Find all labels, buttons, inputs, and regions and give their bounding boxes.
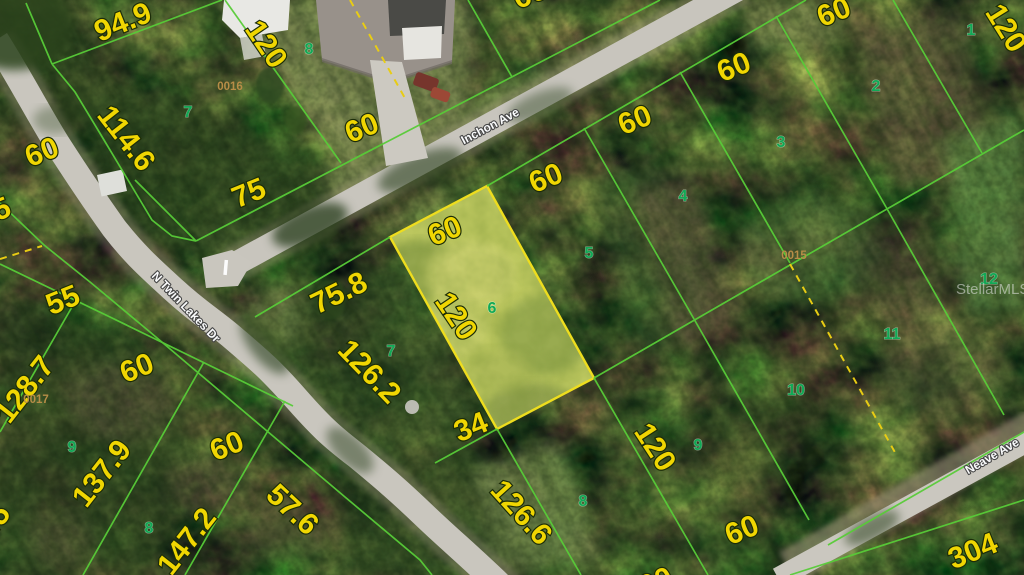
- svg-text:0015: 0015: [781, 250, 807, 262]
- svg-text:5: 5: [585, 245, 594, 262]
- svg-text:0017: 0017: [23, 394, 49, 406]
- svg-text:0016: 0016: [217, 81, 243, 93]
- svg-text:2: 2: [872, 78, 881, 95]
- svg-text:6: 6: [488, 300, 497, 317]
- svg-text:8: 8: [145, 520, 154, 537]
- svg-text:StellarMLS: StellarMLS: [956, 281, 1024, 298]
- svg-text:4: 4: [679, 188, 688, 205]
- svg-text:9: 9: [694, 437, 703, 454]
- svg-text:9: 9: [68, 439, 77, 456]
- svg-text:7: 7: [184, 104, 193, 121]
- svg-text:7: 7: [387, 343, 396, 360]
- svg-text:11: 11: [884, 326, 901, 343]
- svg-text:3: 3: [777, 134, 786, 151]
- svg-text:8: 8: [579, 493, 588, 510]
- svg-text:8: 8: [305, 41, 314, 58]
- svg-text:10: 10: [787, 382, 805, 399]
- svg-text:1: 1: [967, 22, 976, 39]
